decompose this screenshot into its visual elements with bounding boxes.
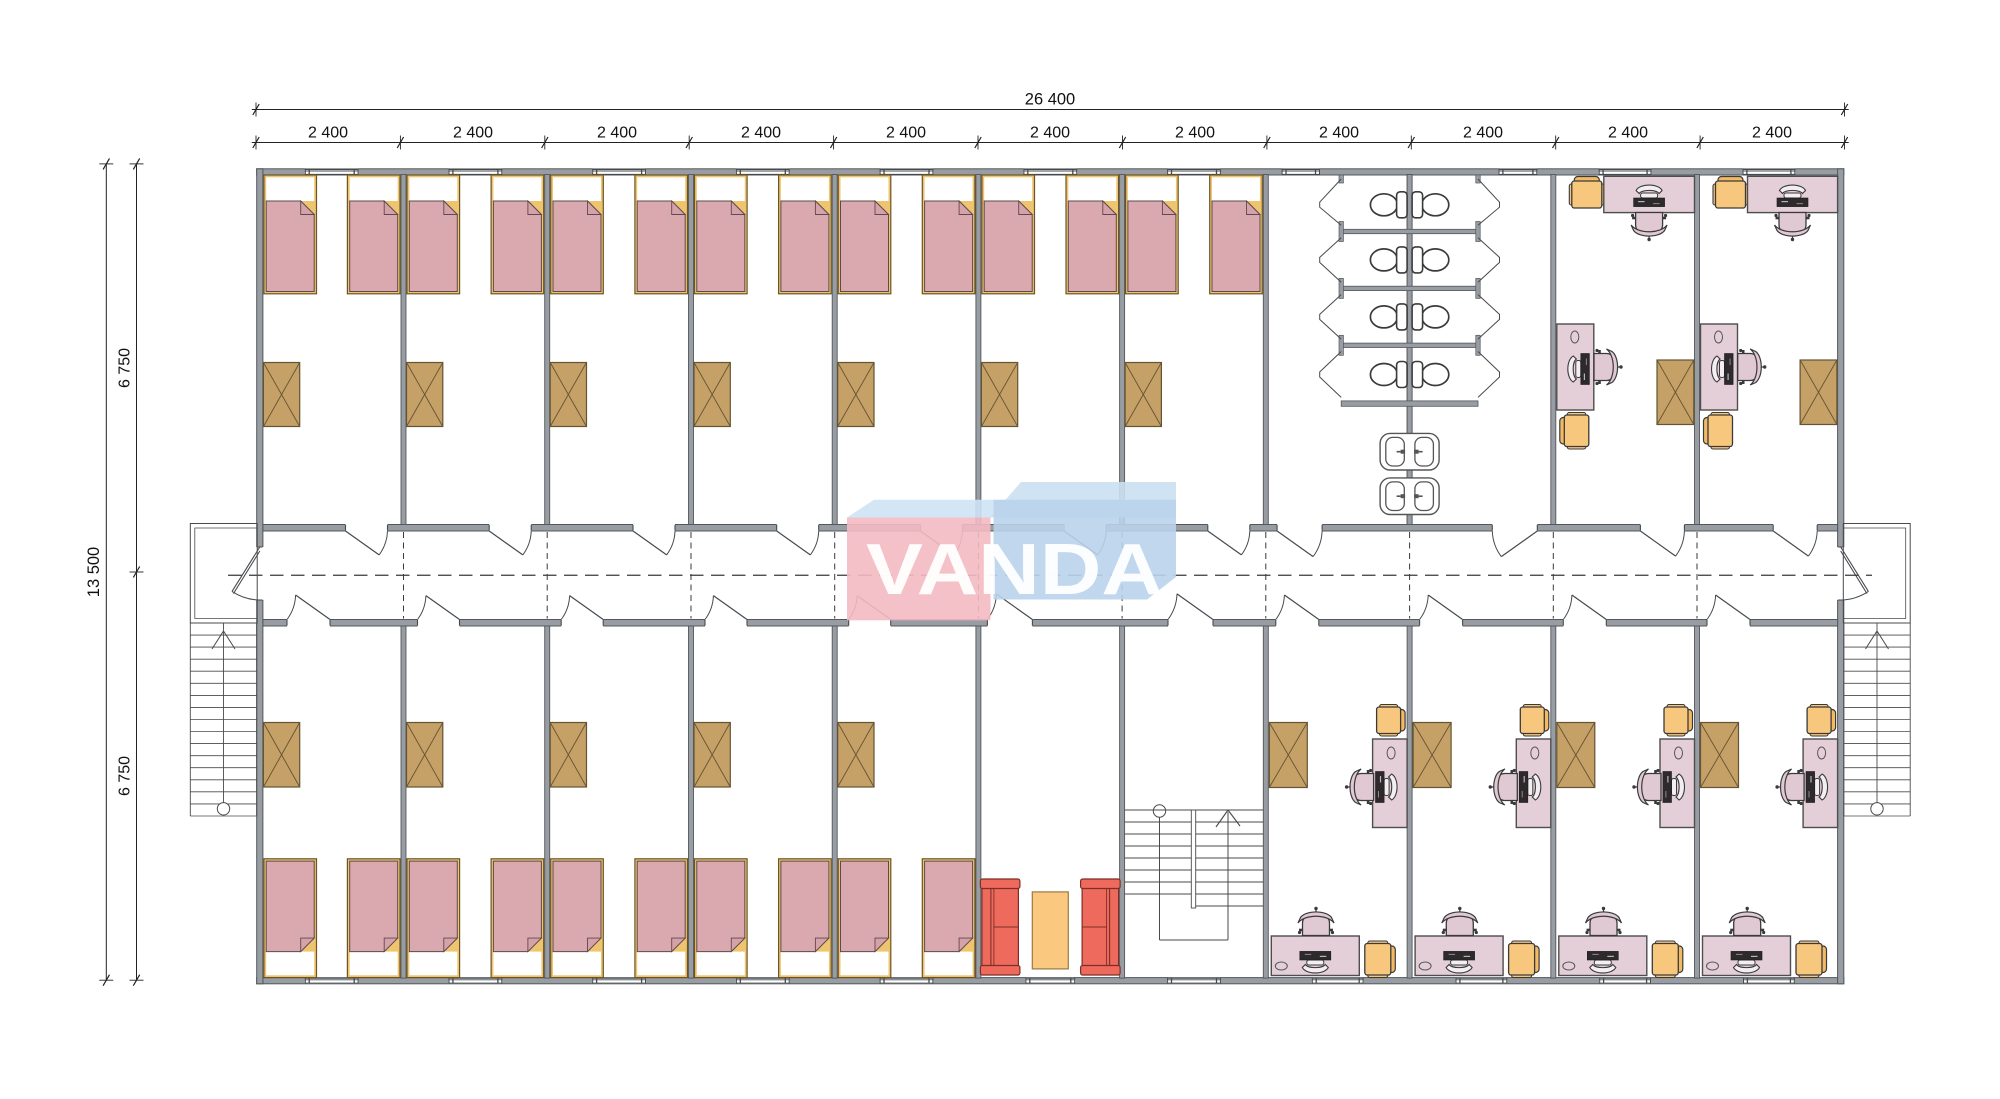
- svg-text:2 400: 2 400: [1175, 125, 1215, 142]
- svg-text:2 400: 2 400: [1319, 125, 1359, 142]
- svg-text:2 400: 2 400: [453, 125, 493, 142]
- svg-text:6 750: 6 750: [117, 756, 134, 796]
- svg-text:2 400: 2 400: [308, 125, 348, 142]
- svg-text:2 400: 2 400: [1752, 125, 1792, 142]
- svg-text:2 400: 2 400: [1463, 125, 1503, 142]
- svg-text:2 400: 2 400: [597, 125, 637, 142]
- svg-text:2 400: 2 400: [886, 125, 926, 142]
- svg-text:2 400: 2 400: [1608, 125, 1648, 142]
- svg-text:13 500: 13 500: [85, 547, 103, 597]
- svg-text:VANDA: VANDA: [866, 530, 1163, 610]
- svg-text:6 750: 6 750: [117, 348, 134, 388]
- svg-text:2 400: 2 400: [1030, 125, 1070, 142]
- svg-text:2 400: 2 400: [741, 125, 781, 142]
- svg-text:26 400: 26 400: [1025, 91, 1075, 109]
